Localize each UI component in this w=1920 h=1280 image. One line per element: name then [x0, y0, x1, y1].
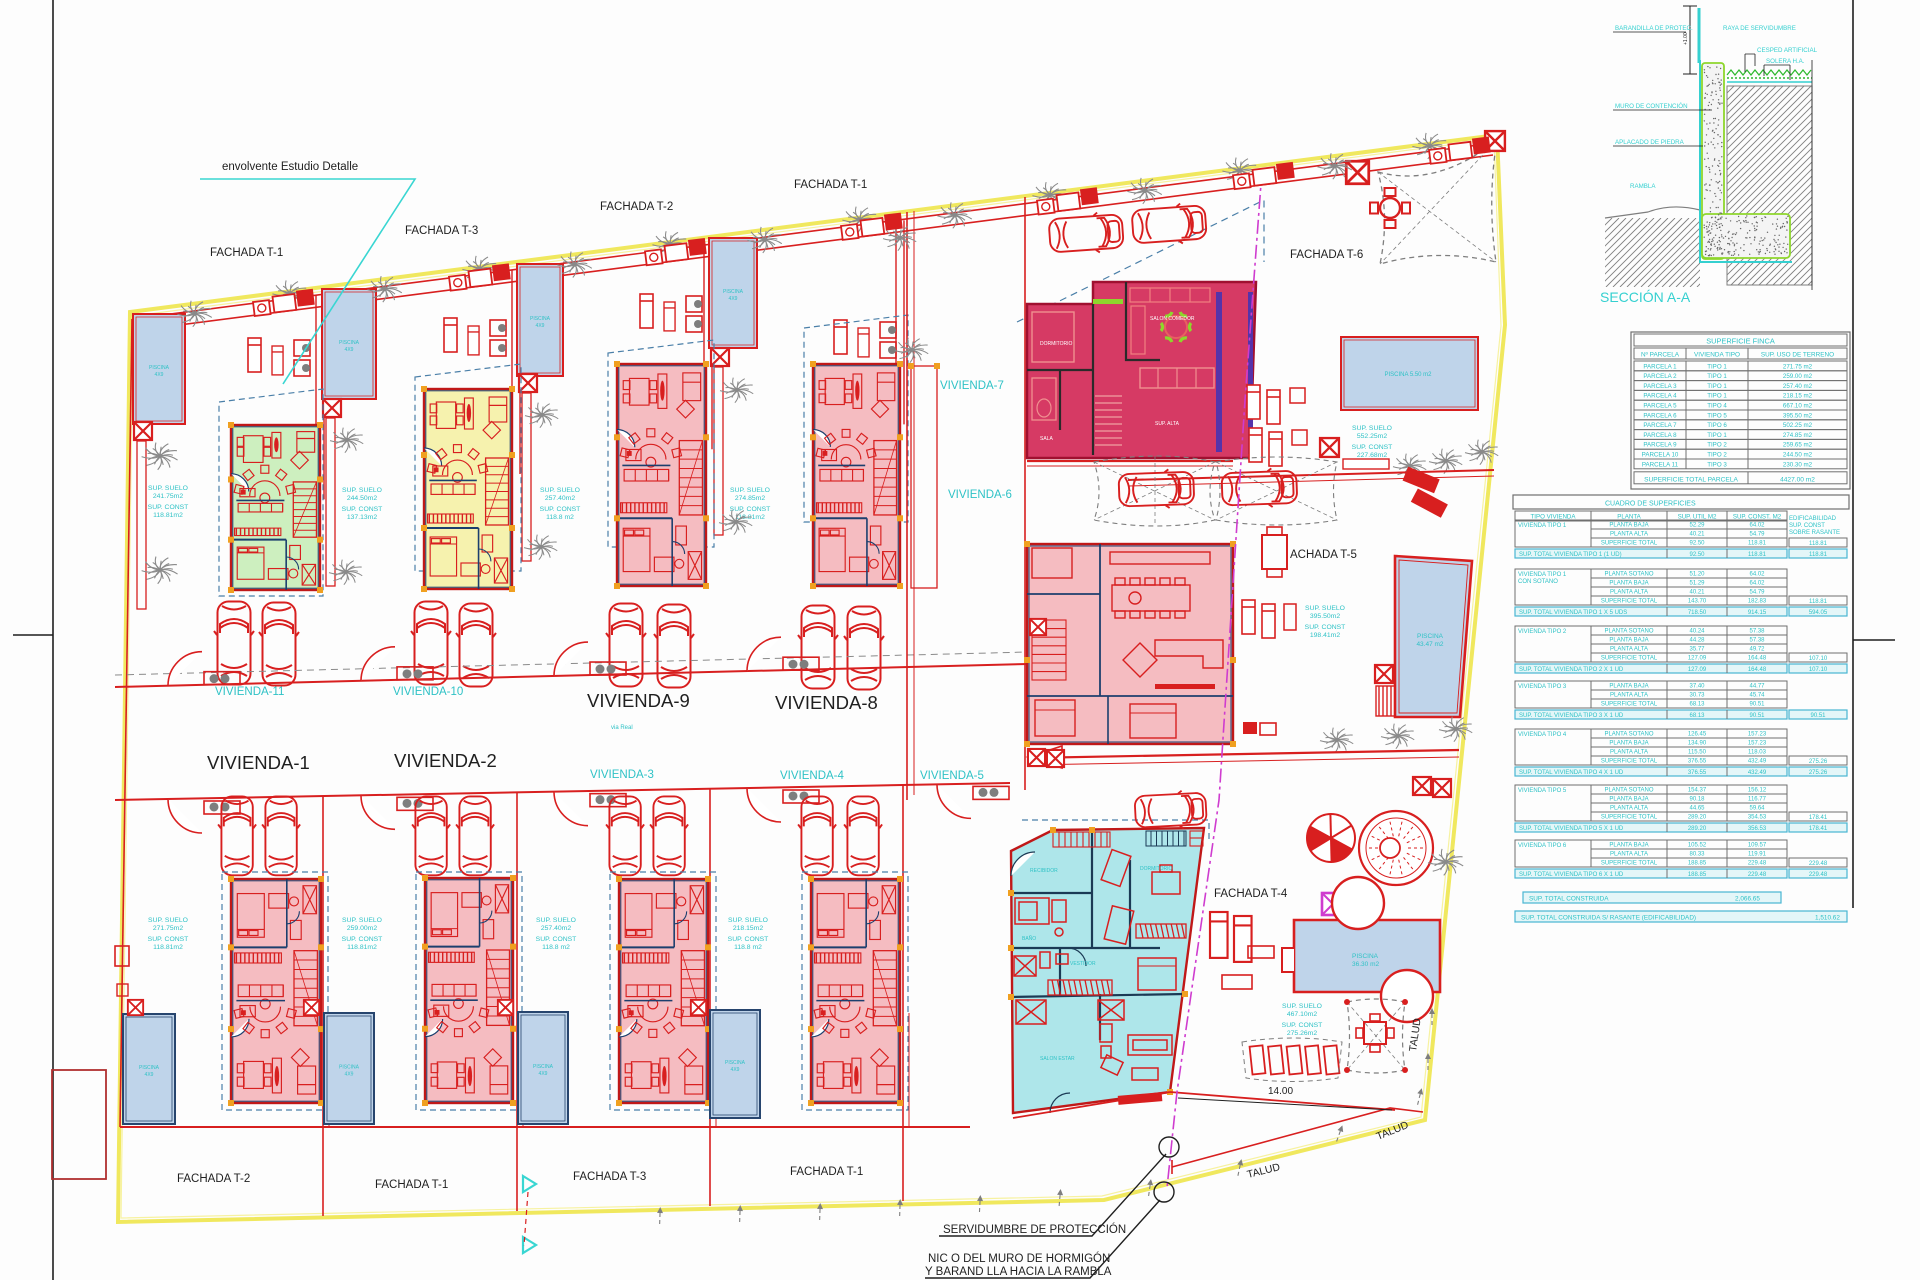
- svg-text:PARCELA 11: PARCELA 11: [1642, 461, 1679, 468]
- svg-text:FACHADA T-6: FACHADA T-6: [1290, 249, 1363, 261]
- svg-text:PLANTA ALTA: PLANTA ALTA: [1610, 806, 1648, 812]
- svg-text:80.33: 80.33: [1689, 852, 1705, 858]
- svg-text:218.15 m2: 218.15 m2: [1783, 393, 1813, 400]
- svg-text:TIPO VIVIENDA: TIPO VIVIENDA: [1530, 514, 1576, 521]
- svg-text:PISCINA: PISCINA: [725, 1060, 746, 1066]
- svg-text:SUP. SUELO: SUP. SUELO: [148, 485, 188, 492]
- svg-text:PISCINA: PISCINA: [339, 340, 360, 346]
- svg-text:SUP. SUELO: SUP. SUELO: [342, 487, 382, 494]
- svg-text:68.13: 68.13: [1689, 702, 1705, 708]
- svg-text:118.81: 118.81: [1809, 541, 1828, 547]
- svg-text:64.02: 64.02: [1749, 581, 1765, 587]
- svg-text:275.26m2: 275.26m2: [1287, 1030, 1317, 1037]
- svg-text:157.23: 157.23: [1748, 741, 1767, 747]
- svg-text:107.10: 107.10: [1809, 667, 1828, 673]
- svg-text:44.77: 44.77: [1749, 684, 1765, 690]
- svg-text:90.51: 90.51: [1810, 713, 1826, 719]
- svg-text:35.77: 35.77: [1689, 647, 1705, 653]
- svg-text:PARCELA 2: PARCELA 2: [1643, 373, 1677, 380]
- svg-text:PISCINA: PISCINA: [530, 316, 551, 322]
- svg-text:143.70: 143.70: [1688, 599, 1707, 605]
- svg-text:VIVIENDA TIPO 5: VIVIENDA TIPO 5: [1518, 788, 1567, 794]
- svg-text:229.48: 229.48: [1809, 861, 1828, 867]
- svg-text:257.40m2: 257.40m2: [545, 495, 575, 502]
- svg-text:PLANTA ALTA: PLANTA ALTA: [1610, 693, 1648, 699]
- svg-text:VIVIENDA-5: VIVIENDA-5: [920, 770, 984, 782]
- svg-text:356.53: 356.53: [1748, 826, 1767, 832]
- svg-text:PISCINA: PISCINA: [1352, 953, 1379, 960]
- svg-text:SUPERFICIE TOTAL: SUPERFICIE TOTAL: [1601, 656, 1658, 662]
- svg-text:257.40 m2: 257.40 m2: [1783, 383, 1813, 390]
- svg-text:SUP. SUELO: SUP. SUELO: [1352, 425, 1392, 432]
- svg-text:44.65: 44.65: [1689, 806, 1705, 812]
- svg-text:54.79: 54.79: [1749, 532, 1765, 538]
- svg-text:376.55: 376.55: [1688, 770, 1707, 776]
- svg-text:VIVIENDA TIPO 2: VIVIENDA TIPO 2: [1518, 629, 1567, 635]
- svg-text:TIPO 5: TIPO 5: [1707, 412, 1727, 419]
- svg-text:4X9: 4X9: [345, 1072, 354, 1078]
- svg-text:+1.00: +1.00: [1683, 32, 1689, 45]
- svg-text:37.40: 37.40: [1689, 684, 1705, 690]
- svg-text:VIVIENDA TIPO 6: VIVIENDA TIPO 6: [1518, 843, 1567, 849]
- svg-text:SALA: SALA: [1040, 436, 1053, 442]
- svg-text:BAÑO: BAÑO: [1022, 935, 1036, 942]
- svg-text:30.73: 30.73: [1689, 693, 1705, 699]
- svg-text:SUP. SUELO: SUP. SUELO: [536, 917, 576, 924]
- svg-text:BARANDILLA DE PROTEC.: BARANDILLA DE PROTEC.: [1615, 25, 1693, 32]
- svg-text:PISCINA: PISCINA: [723, 289, 744, 295]
- svg-text:4X9: 4X9: [536, 323, 545, 329]
- svg-text:395.50m2: 395.50m2: [1310, 613, 1340, 620]
- svg-text:126.45: 126.45: [1688, 732, 1707, 738]
- svg-text:TIPO 2: TIPO 2: [1707, 452, 1727, 459]
- svg-text:FACHADA T-3: FACHADA T-3: [573, 1171, 646, 1183]
- svg-text:MURO DE CONTENCIÓN: MURO DE CONTENCIÓN: [1615, 103, 1688, 110]
- svg-text:14.00: 14.00: [1268, 1086, 1293, 1097]
- svg-text:134.90: 134.90: [1688, 741, 1707, 747]
- svg-text:118.81m2: 118.81m2: [153, 512, 183, 519]
- svg-text:164.48: 164.48: [1748, 656, 1767, 662]
- svg-text:118.81: 118.81: [1748, 541, 1767, 547]
- svg-text:VIVIENDA TIPO 1: VIVIENDA TIPO 1: [1518, 572, 1567, 578]
- svg-text:4427.00 m2: 4427.00 m2: [1780, 476, 1815, 483]
- svg-text:VIVIENDA TIPO: VIVIENDA TIPO: [1694, 352, 1740, 359]
- svg-text:TIPO 3: TIPO 3: [1707, 461, 1727, 468]
- svg-text:EDIFICABILIDAD: EDIFICABILIDAD: [1789, 516, 1837, 522]
- svg-text:SUP. CONST: SUP. CONST: [540, 506, 581, 513]
- svg-text:PLANTA BAJA: PLANTA BAJA: [1609, 843, 1648, 849]
- svg-text:via Real: via Real: [611, 725, 633, 731]
- svg-text:230.30 m2: 230.30 m2: [1783, 461, 1813, 468]
- svg-text:SUP. CONST: SUP. CONST: [728, 936, 769, 943]
- svg-text:PLANTA BAJA: PLANTA BAJA: [1609, 741, 1648, 747]
- svg-text:467.10m2: 467.10m2: [1287, 1011, 1317, 1018]
- svg-text:667.10 m2: 667.10 m2: [1783, 403, 1813, 410]
- svg-text:RAYA DE SERVIDUMBRE: RAYA DE SERVIDUMBRE: [1723, 25, 1796, 32]
- svg-text:109.57: 109.57: [1748, 843, 1767, 849]
- svg-text:PLANTA ALTA: PLANTA ALTA: [1610, 590, 1648, 596]
- svg-text:RAMBLA: RAMBLA: [1630, 183, 1656, 190]
- svg-text:127.09: 127.09: [1688, 667, 1707, 673]
- svg-text:PLANTA ALTA: PLANTA ALTA: [1610, 852, 1648, 858]
- svg-text:FACHADA T-2: FACHADA T-2: [177, 1173, 250, 1185]
- svg-text:164.48: 164.48: [1748, 667, 1767, 673]
- svg-text:137.13m2: 137.13m2: [347, 514, 377, 521]
- svg-text:TIPO 1: TIPO 1: [1707, 373, 1727, 380]
- svg-text:PARCELA 4: PARCELA 4: [1643, 393, 1677, 400]
- svg-text:SALON ESTAR: SALON ESTAR: [1040, 1056, 1075, 1062]
- svg-text:SUP. TOTAL VIVIENDA TIPO 1 X 5: SUP. TOTAL VIVIENDA TIPO 1 X 5 UDS: [1519, 610, 1627, 616]
- svg-text:49.72: 49.72: [1749, 647, 1765, 653]
- svg-text:FACHADA T-1: FACHADA T-1: [790, 1166, 863, 1178]
- svg-text:PLANTA BAJA: PLANTA BAJA: [1609, 797, 1648, 803]
- svg-text:FACHADA T-2: FACHADA T-2: [600, 201, 673, 213]
- svg-text:SUP. SUELO: SUP. SUELO: [1305, 605, 1345, 612]
- svg-text:229.48: 229.48: [1748, 861, 1767, 867]
- svg-text:VIVIENDA-10: VIVIENDA-10: [393, 686, 463, 698]
- svg-text:SUP. CONST: SUP. CONST: [1305, 624, 1346, 631]
- svg-text:59.64: 59.64: [1749, 806, 1765, 812]
- svg-text:PISCINA: PISCINA: [533, 1064, 554, 1070]
- svg-text:116.77: 116.77: [1748, 797, 1767, 803]
- svg-text:244.50 m2: 244.50 m2: [1783, 452, 1813, 459]
- svg-text:119.91: 119.91: [1748, 852, 1767, 858]
- svg-text:45.74: 45.74: [1749, 693, 1765, 699]
- svg-text:275.26: 275.26: [1809, 770, 1828, 776]
- svg-text:SUP. CONST: SUP. CONST: [730, 506, 771, 513]
- svg-text:178.41: 178.41: [1809, 815, 1828, 821]
- svg-text:PARCELA 10: PARCELA 10: [1642, 452, 1679, 459]
- svg-text:RECIBIDOR: RECIBIDOR: [1030, 868, 1058, 874]
- svg-text:SUP. SUELO: SUP. SUELO: [728, 917, 768, 924]
- svg-text:SUP. TOTAL CONSTRUIDA: SUP. TOTAL CONSTRUIDA: [1529, 896, 1609, 903]
- svg-text:TIPO 4: TIPO 4: [1707, 403, 1727, 410]
- svg-text:VIVIENDA TIPO 3: VIVIENDA TIPO 3: [1518, 684, 1567, 690]
- svg-text:PARCELA 1: PARCELA 1: [1643, 363, 1677, 370]
- svg-text:VIVIENDA-1: VIVIENDA-1: [207, 752, 310, 773]
- svg-text:PARCELA 3: PARCELA 3: [1643, 383, 1677, 390]
- svg-text:64.02: 64.02: [1749, 572, 1765, 578]
- svg-text:157.23: 157.23: [1748, 732, 1767, 738]
- svg-text:218.15m2: 218.15m2: [733, 925, 763, 932]
- svg-text:FACHADA T-4: FACHADA T-4: [1214, 888, 1288, 900]
- svg-text:40.21: 40.21: [1689, 532, 1705, 538]
- svg-text:92.50: 92.50: [1689, 541, 1705, 547]
- svg-text:118.03: 118.03: [1748, 750, 1767, 756]
- svg-text:SUP. TOTAL CONSTRUIDA S/ RASAN: SUP. TOTAL CONSTRUIDA S/ RASANTE (EDIFIC…: [1521, 915, 1696, 922]
- svg-text:PLANTA: PLANTA: [1617, 514, 1641, 521]
- svg-text:SUP. CONST: SUP. CONST: [342, 506, 383, 513]
- svg-text:VIVIENDA-6: VIVIENDA-6: [948, 489, 1012, 501]
- svg-text:188.85: 188.85: [1688, 872, 1707, 878]
- svg-text:257.40m2: 257.40m2: [541, 925, 571, 932]
- svg-text:SUP. SUELO: SUP. SUELO: [730, 487, 770, 494]
- svg-text:SUPERFICIE TOTAL: SUPERFICIE TOTAL: [1601, 759, 1658, 765]
- svg-text:271.75 m2: 271.75 m2: [1783, 363, 1813, 370]
- svg-text:SUP. CONST. M2: SUP. CONST. M2: [1733, 514, 1782, 521]
- svg-text:241.75m2: 241.75m2: [153, 493, 183, 500]
- svg-text:Y BARAND LLA HACIA LA RAMBLA: Y BARAND LLA HACIA LA RAMBLA: [925, 1266, 1112, 1278]
- svg-text:ACHADA T-5: ACHADA T-5: [1290, 549, 1357, 561]
- svg-text:TIPO 1: TIPO 1: [1707, 393, 1727, 400]
- svg-text:SUP. CONST: SUP. CONST: [1282, 1022, 1323, 1029]
- svg-text:227.68m2: 227.68m2: [1357, 452, 1387, 459]
- svg-text:118.8 m2: 118.8 m2: [546, 514, 574, 521]
- svg-text:118.81: 118.81: [1809, 599, 1828, 605]
- svg-text:44.28: 44.28: [1689, 638, 1705, 644]
- svg-text:107.10: 107.10: [1809, 656, 1828, 662]
- svg-text:127.09: 127.09: [1688, 656, 1707, 662]
- svg-text:envolvente Estudio Detalle: envolvente Estudio Detalle: [222, 161, 358, 173]
- svg-text:90.51: 90.51: [1749, 702, 1765, 708]
- svg-text:354.53: 354.53: [1748, 815, 1767, 821]
- svg-text:395.50 m2: 395.50 m2: [1783, 412, 1813, 419]
- svg-text:PLANTA BAJA: PLANTA BAJA: [1609, 581, 1648, 587]
- svg-text:SUP. SUELO: SUP. SUELO: [148, 917, 188, 924]
- svg-text:CON SOTANO: CON SOTANO: [1518, 579, 1558, 585]
- svg-text:SUP. USO DE TERRENO: SUP. USO DE TERRENO: [1761, 352, 1834, 359]
- svg-text:51.20: 51.20: [1689, 572, 1705, 578]
- svg-text:PLANTA BAJA: PLANTA BAJA: [1609, 684, 1648, 690]
- svg-text:SECCIÓN A-A: SECCIÓN A-A: [1600, 289, 1691, 305]
- svg-text:SUP. CONST: SUP. CONST: [148, 504, 189, 511]
- svg-text:TIPO 1: TIPO 1: [1707, 383, 1727, 390]
- svg-text:PISCINA 5.50 m2: PISCINA 5.50 m2: [1384, 372, 1432, 378]
- svg-text:432.49: 432.49: [1748, 770, 1767, 776]
- svg-text:4X9: 4X9: [145, 1072, 154, 1078]
- svg-text:40.24: 40.24: [1689, 629, 1705, 635]
- svg-text:229.48: 229.48: [1809, 872, 1828, 878]
- svg-text:SUPERFICIE TOTAL: SUPERFICIE TOTAL: [1601, 815, 1658, 821]
- svg-text:52.29: 52.29: [1689, 523, 1705, 529]
- svg-text:SUP. ALTA: SUP. ALTA: [1155, 421, 1180, 427]
- svg-text:90.18: 90.18: [1689, 797, 1705, 803]
- svg-text:VIVIENDA-7: VIVIENDA-7: [940, 380, 1004, 392]
- svg-text:SUP. SUELO: SUP. SUELO: [342, 917, 382, 924]
- svg-text:51.29: 51.29: [1689, 581, 1705, 587]
- svg-text:SUPERFICIE FINCA: SUPERFICIE FINCA: [1706, 337, 1775, 346]
- svg-text:57.38: 57.38: [1749, 638, 1765, 644]
- svg-text:PLANTA SOTANO: PLANTA SOTANO: [1604, 629, 1653, 635]
- svg-text:90.51: 90.51: [1749, 713, 1765, 719]
- svg-text:118.81m2: 118.81m2: [153, 944, 183, 951]
- svg-text:PARCELA 5: PARCELA 5: [1643, 403, 1677, 410]
- svg-text:274.85m2: 274.85m2: [735, 495, 765, 502]
- svg-text:SUP. CONST: SUP. CONST: [342, 936, 383, 943]
- svg-text:4X9: 4X9: [155, 372, 164, 378]
- svg-text:SUP. TOTAL VIVIENDA TIPO 2 X 1: SUP. TOTAL VIVIENDA TIPO 2 X 1 UD: [1519, 667, 1624, 673]
- svg-text:SUP. TOTAL VIVIENDA TIPO 1 (1: SUP. TOTAL VIVIENDA TIPO 1 (1 UD): [1519, 552, 1622, 558]
- svg-text:PLANTA BAJA: PLANTA BAJA: [1609, 523, 1648, 529]
- svg-text:PISCINA: PISCINA: [139, 1065, 160, 1071]
- svg-text:118.81: 118.81: [1748, 552, 1767, 558]
- svg-text:115.50: 115.50: [1688, 750, 1707, 756]
- svg-text:PLANTA ALTA: PLANTA ALTA: [1610, 750, 1648, 756]
- svg-text:259.00m2: 259.00m2: [347, 925, 377, 932]
- svg-text:914.15: 914.15: [1748, 610, 1767, 616]
- svg-text:SUP. CONST: SUP. CONST: [536, 936, 577, 943]
- svg-text:57.38: 57.38: [1749, 629, 1765, 635]
- svg-text:4X9: 4X9: [729, 296, 738, 302]
- svg-text:178.41: 178.41: [1809, 826, 1828, 832]
- svg-text:VIVIENDA-3: VIVIENDA-3: [590, 769, 654, 781]
- svg-text:502.25 m2: 502.25 m2: [1783, 422, 1813, 429]
- svg-text:TIPO 2: TIPO 2: [1707, 442, 1727, 449]
- svg-text:PARCELA 8: PARCELA 8: [1643, 432, 1677, 439]
- svg-text:FACHADA T-3: FACHADA T-3: [405, 225, 478, 237]
- svg-text:TIPO 1: TIPO 1: [1707, 432, 1727, 439]
- svg-text:552.25m2: 552.25m2: [1357, 433, 1387, 440]
- svg-text:40.21: 40.21: [1689, 590, 1705, 596]
- svg-text:SUPERFICIE TOTAL: SUPERFICIE TOTAL: [1601, 702, 1658, 708]
- svg-text:SUP. UTIL M2: SUP. UTIL M2: [1678, 514, 1717, 521]
- svg-text:259.00 m2: 259.00 m2: [1783, 373, 1813, 380]
- svg-text:PARCELA 7: PARCELA 7: [1643, 422, 1677, 429]
- svg-text:1,510.62: 1,510.62: [1815, 915, 1840, 922]
- svg-text:274.85 m2: 274.85 m2: [1783, 432, 1813, 439]
- svg-text:118.81: 118.81: [1809, 552, 1828, 558]
- svg-text:SALON COMEDOR: SALON COMEDOR: [1150, 316, 1195, 322]
- svg-text:92.50: 92.50: [1689, 552, 1705, 558]
- svg-text:SUPERFICIE TOTAL: SUPERFICIE TOTAL: [1601, 541, 1658, 547]
- svg-text:SUPERFICIE TOTAL: SUPERFICIE TOTAL: [1601, 861, 1658, 867]
- svg-text:SUP. CONST: SUP. CONST: [1352, 444, 1393, 451]
- svg-text:TIPO 1: TIPO 1: [1707, 363, 1727, 370]
- svg-text:118.81m2: 118.81m2: [347, 944, 377, 951]
- svg-text:188.85: 188.85: [1688, 861, 1707, 867]
- svg-text:105.52: 105.52: [1688, 843, 1707, 849]
- svg-text:229.48: 229.48: [1748, 872, 1767, 878]
- svg-text:VIVIENDA-8: VIVIENDA-8: [775, 692, 878, 713]
- svg-text:64.02: 64.02: [1749, 523, 1765, 529]
- svg-text:PARCELA 6: PARCELA 6: [1643, 412, 1677, 419]
- svg-text:SUP. TOTAL VIVIENDA TIPO 6 X 1: SUP. TOTAL VIVIENDA TIPO 6 X 1 UD: [1519, 872, 1624, 878]
- svg-text:NIC O DEL MURO DE HORMIGÓN: NIC O DEL MURO DE HORMIGÓN: [928, 1252, 1110, 1265]
- svg-text:154.37: 154.37: [1688, 788, 1707, 794]
- svg-text:54.79: 54.79: [1749, 590, 1765, 596]
- svg-text:FACHADA T-1: FACHADA T-1: [210, 247, 283, 259]
- svg-text:VIVIENDA TIPO 1: VIVIENDA TIPO 1: [1518, 523, 1567, 529]
- svg-text:PLANTA SOTANO: PLANTA SOTANO: [1604, 572, 1653, 578]
- svg-text:SUP. CONST: SUP. CONST: [1789, 523, 1825, 529]
- svg-text:VESTIDOR: VESTIDOR: [1070, 961, 1096, 967]
- svg-text:259.65 m2: 259.65 m2: [1783, 442, 1813, 449]
- svg-text:SUPERFICIE TOTAL: SUPERFICIE TOTAL: [1601, 599, 1658, 605]
- svg-text:PLANTA ALTA: PLANTA ALTA: [1610, 532, 1648, 538]
- svg-text:SUP. TOTAL VIVIENDA TIPO 5 X 1: SUP. TOTAL VIVIENDA TIPO 5 X 1 UD: [1519, 826, 1624, 832]
- svg-text:289.20: 289.20: [1688, 826, 1707, 832]
- svg-text:SOBRE RASANTE: SOBRE RASANTE: [1789, 530, 1840, 536]
- svg-text:118.8 m2: 118.8 m2: [734, 944, 762, 951]
- svg-text:SUP. SUELO: SUP. SUELO: [1282, 1003, 1322, 1010]
- svg-text:2,066.65: 2,066.65: [1735, 896, 1760, 903]
- svg-text:SUP. TOTAL VIVIENDA TIPO 4 X 1: SUP. TOTAL VIVIENDA TIPO 4 X 1 UD: [1519, 770, 1624, 776]
- svg-text:36.30 m2: 36.30 m2: [1352, 961, 1379, 968]
- svg-text:SUPERFICIE TOTAL PARCELA: SUPERFICIE TOTAL PARCELA: [1644, 476, 1738, 483]
- svg-text:43.47 m2: 43.47 m2: [1416, 641, 1443, 648]
- svg-text:PLANTA SOTANO: PLANTA SOTANO: [1604, 788, 1653, 794]
- svg-text:CESPED ARTIFICIAL: CESPED ARTIFICIAL: [1757, 47, 1818, 54]
- svg-text:PLANTA SOTANO: PLANTA SOTANO: [1604, 732, 1653, 738]
- svg-text:VIVIENDA-2: VIVIENDA-2: [394, 750, 497, 771]
- svg-text:289.20: 289.20: [1688, 815, 1707, 821]
- svg-text:PLANTA BAJA: PLANTA BAJA: [1609, 638, 1648, 644]
- svg-text:SUP. TOTAL VIVIENDA TIPO 3 X 1: SUP. TOTAL VIVIENDA TIPO 3 X 1 UD: [1519, 713, 1624, 719]
- svg-text:FACHADA T-1: FACHADA T-1: [794, 179, 867, 191]
- svg-text:4X9: 4X9: [731, 1067, 740, 1073]
- svg-text:PLANTA ALTA: PLANTA ALTA: [1610, 647, 1648, 653]
- svg-text:244.50m2: 244.50m2: [347, 495, 377, 502]
- svg-text:VIVIENDA-9: VIVIENDA-9: [587, 690, 690, 711]
- svg-text:SUP. SUELO: SUP. SUELO: [540, 487, 580, 494]
- svg-text:DORMITORIO: DORMITORIO: [1140, 866, 1173, 872]
- svg-text:VIVIENDA-4: VIVIENDA-4: [780, 770, 845, 782]
- svg-text:VIVIENDA-11: VIVIENDA-11: [215, 686, 284, 698]
- svg-text:156.12: 156.12: [1748, 788, 1767, 794]
- svg-text:PISCINA: PISCINA: [1417, 633, 1444, 640]
- svg-text:SOLERA H.A.: SOLERA H.A.: [1766, 58, 1805, 65]
- svg-text:594.05: 594.05: [1809, 610, 1828, 616]
- svg-text:718.50: 718.50: [1688, 610, 1707, 616]
- svg-text:SERVIDUMBRE DE PROTECCIÓN: SERVIDUMBRE DE PROTECCIÓN: [943, 1223, 1126, 1236]
- svg-text:Nº PARCELA: Nº PARCELA: [1641, 352, 1680, 359]
- svg-text:198.41m2: 198.41m2: [1310, 632, 1340, 639]
- svg-text:FACHADA T-1: FACHADA T-1: [375, 1179, 448, 1191]
- svg-text:DORMITORIO: DORMITORIO: [1040, 341, 1073, 347]
- svg-text:CUADRO DE SUPERFICIES: CUADRO DE SUPERFICIES: [1605, 501, 1696, 508]
- svg-text:PISCINA: PISCINA: [339, 1065, 360, 1071]
- svg-text:376.55: 376.55: [1688, 759, 1707, 765]
- svg-text:271.75m2: 271.75m2: [153, 925, 183, 932]
- svg-text:4X9: 4X9: [345, 347, 354, 353]
- svg-text:4X9: 4X9: [539, 1071, 548, 1077]
- svg-text:APLACADO DE PIEDRA: APLACADO DE PIEDRA: [1615, 139, 1685, 146]
- svg-text:SUP. CONST: SUP. CONST: [148, 936, 189, 943]
- svg-text:118.8 m2: 118.8 m2: [542, 944, 570, 951]
- svg-text:PISCINA: PISCINA: [149, 365, 170, 371]
- svg-text:PARCELA 9: PARCELA 9: [1643, 442, 1677, 449]
- svg-text:275.26: 275.26: [1809, 759, 1828, 765]
- svg-text:182.83: 182.83: [1748, 599, 1767, 605]
- svg-text:432.49: 432.49: [1748, 759, 1767, 765]
- svg-text:VIVIENDA TIPO 4: VIVIENDA TIPO 4: [1518, 732, 1567, 738]
- svg-text:TIPO 6: TIPO 6: [1707, 422, 1727, 429]
- svg-text:68.13: 68.13: [1689, 713, 1705, 719]
